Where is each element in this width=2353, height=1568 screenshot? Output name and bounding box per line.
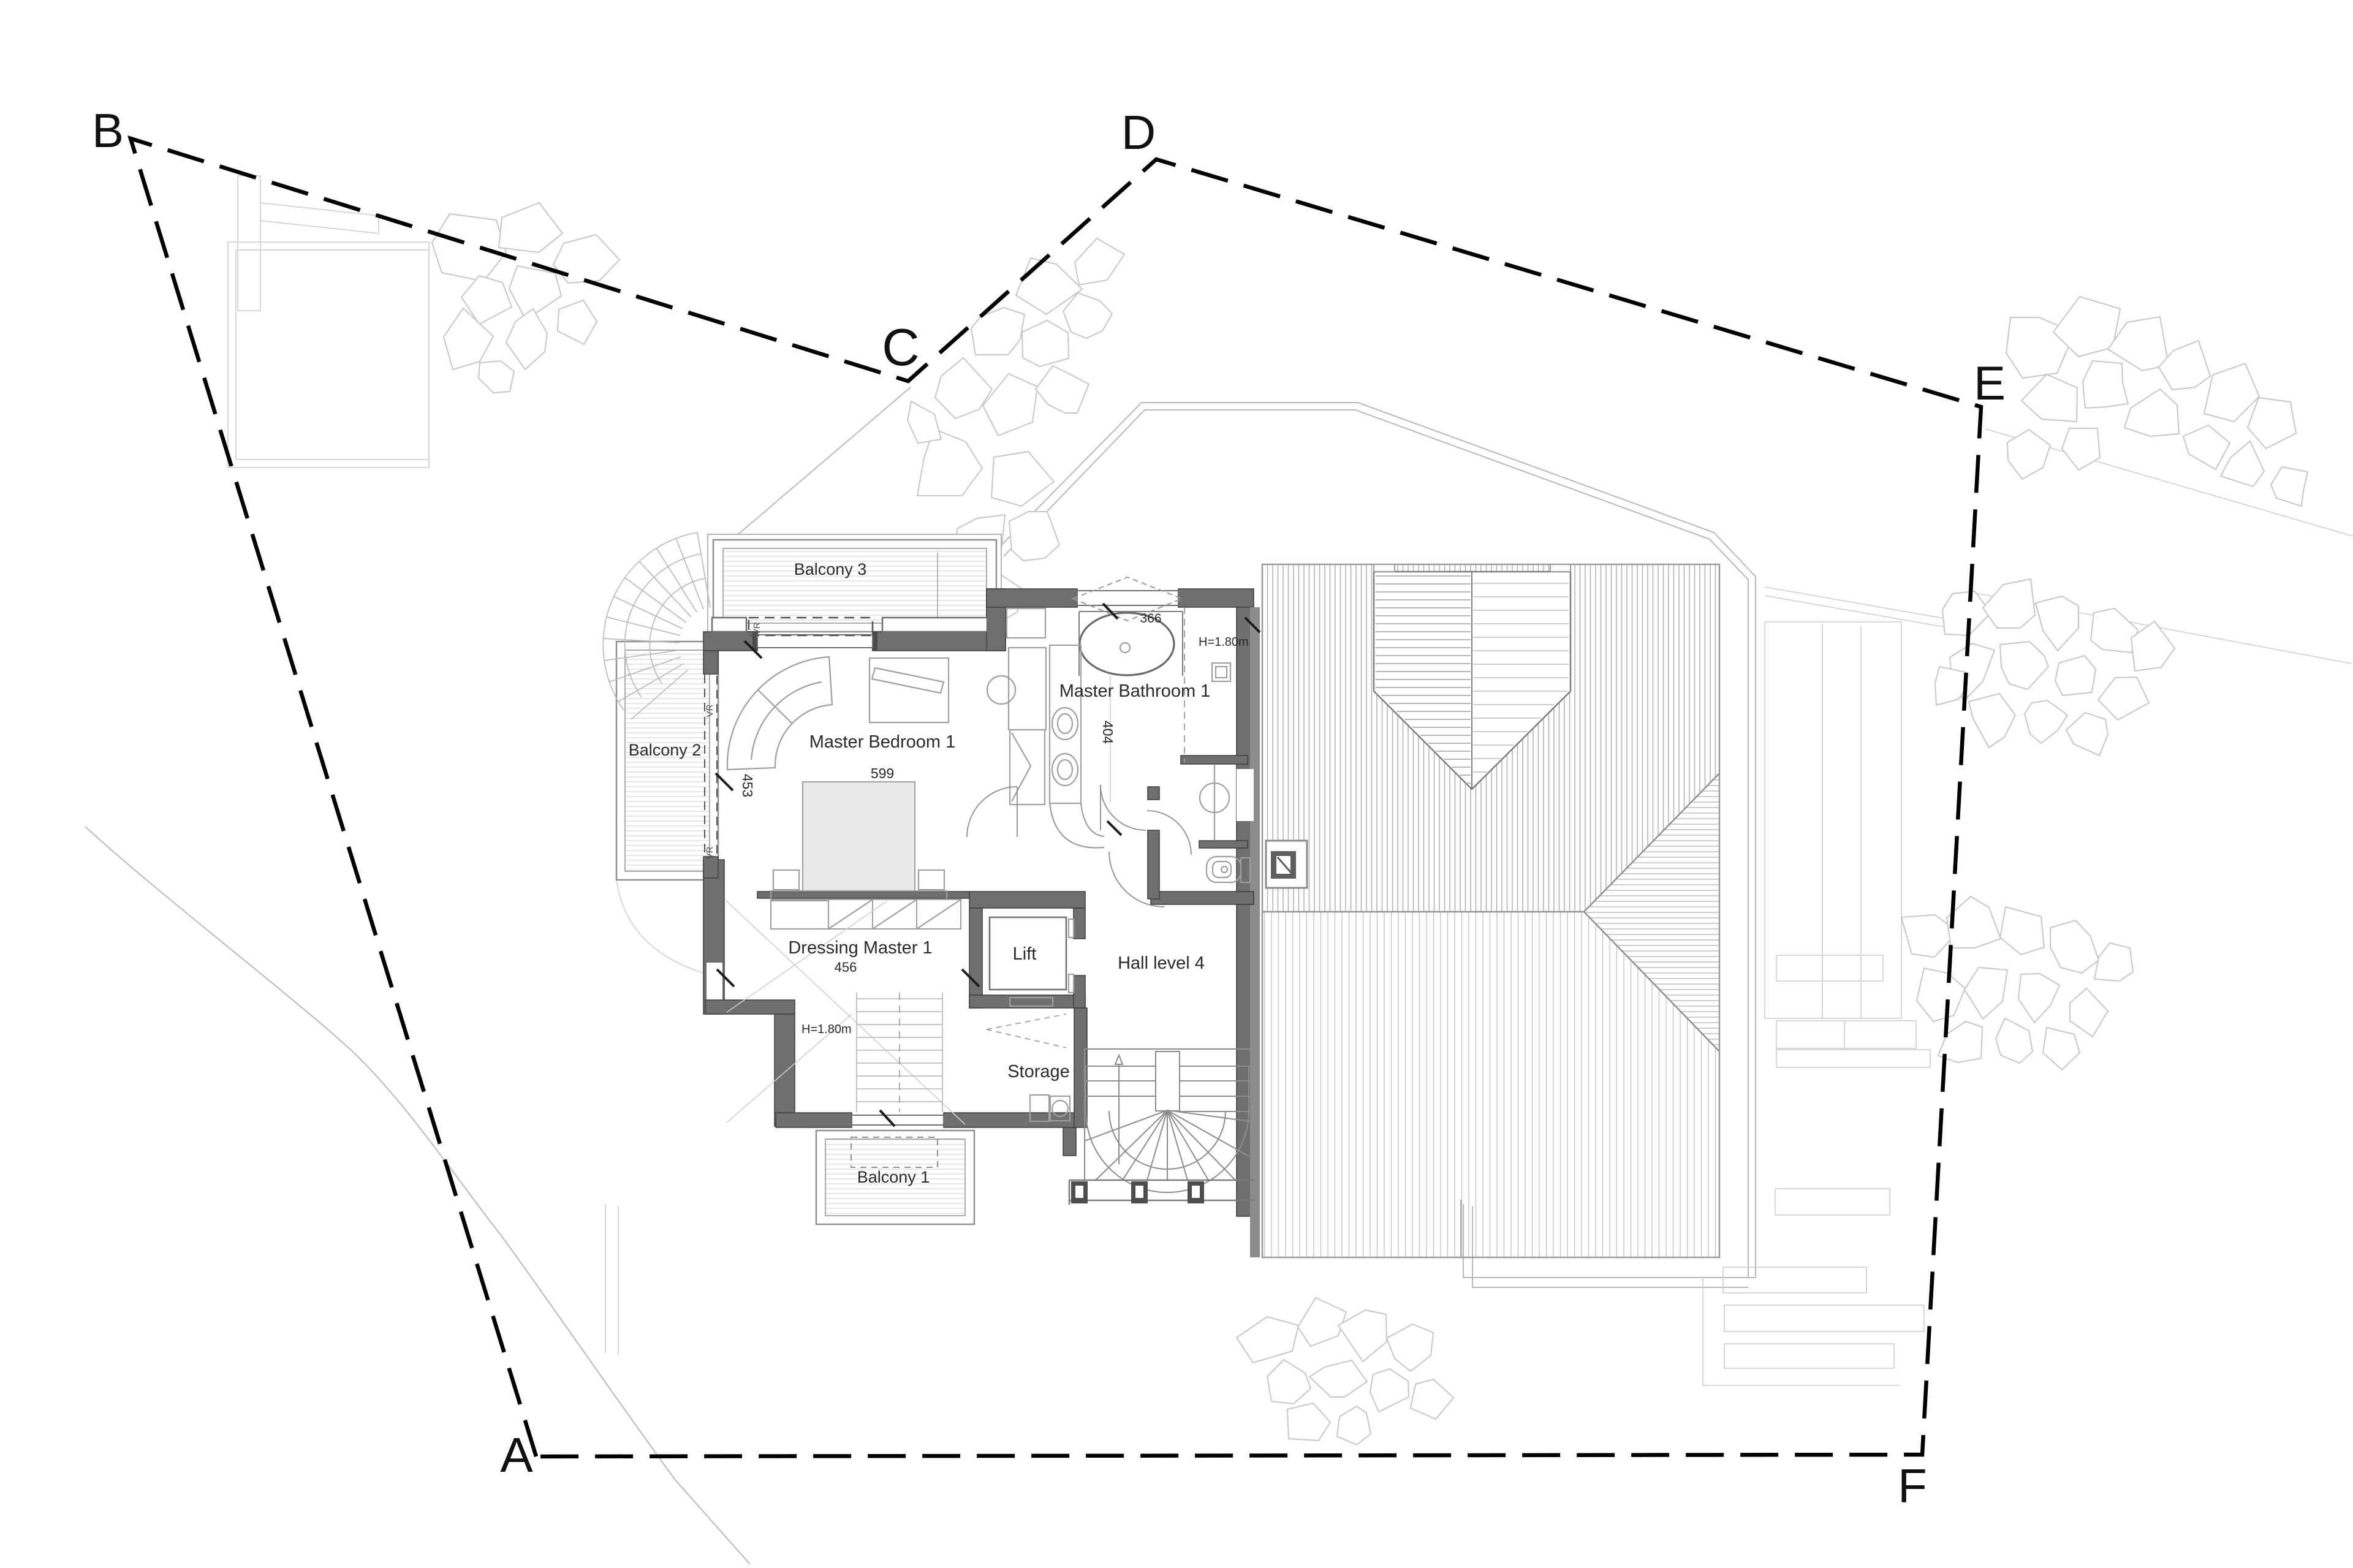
svg-text:Balcony 2: Balcony 2 xyxy=(629,741,702,759)
svg-text:456: 456 xyxy=(835,960,857,975)
svg-text:Dressing Master 1: Dressing Master 1 xyxy=(788,938,932,958)
svg-text:Balcony 1: Balcony 1 xyxy=(857,1168,930,1186)
svg-text:VR: VR xyxy=(705,704,715,717)
svg-text:VR: VR xyxy=(752,622,762,635)
svg-text:Master Bathroom 1: Master Bathroom 1 xyxy=(1059,681,1211,701)
svg-text:C: C xyxy=(882,319,919,377)
svg-text:Balcony 3: Balcony 3 xyxy=(794,560,867,578)
svg-text:366: 366 xyxy=(1140,612,1161,626)
svg-text:B: B xyxy=(92,104,124,157)
svg-text:F: F xyxy=(1898,1459,1927,1513)
svg-text:453: 453 xyxy=(740,774,756,797)
svg-text:E: E xyxy=(1974,356,2006,410)
svg-text:599: 599 xyxy=(871,765,894,781)
svg-text:Master Bedroom 1: Master Bedroom 1 xyxy=(809,732,956,752)
svg-text:404: 404 xyxy=(1100,721,1116,744)
svg-text:D: D xyxy=(1121,105,1156,159)
svg-text:H=1.80m: H=1.80m xyxy=(801,1023,852,1036)
svg-text:VR: VR xyxy=(705,846,715,859)
svg-text:H=1.80m: H=1.80m xyxy=(1199,635,1249,649)
svg-text:Lift: Lift xyxy=(1013,944,1037,964)
svg-text:A: A xyxy=(500,1428,533,1482)
svg-text:Hall level 4: Hall level 4 xyxy=(1118,953,1205,973)
svg-text:Storage: Storage xyxy=(1007,1062,1070,1081)
